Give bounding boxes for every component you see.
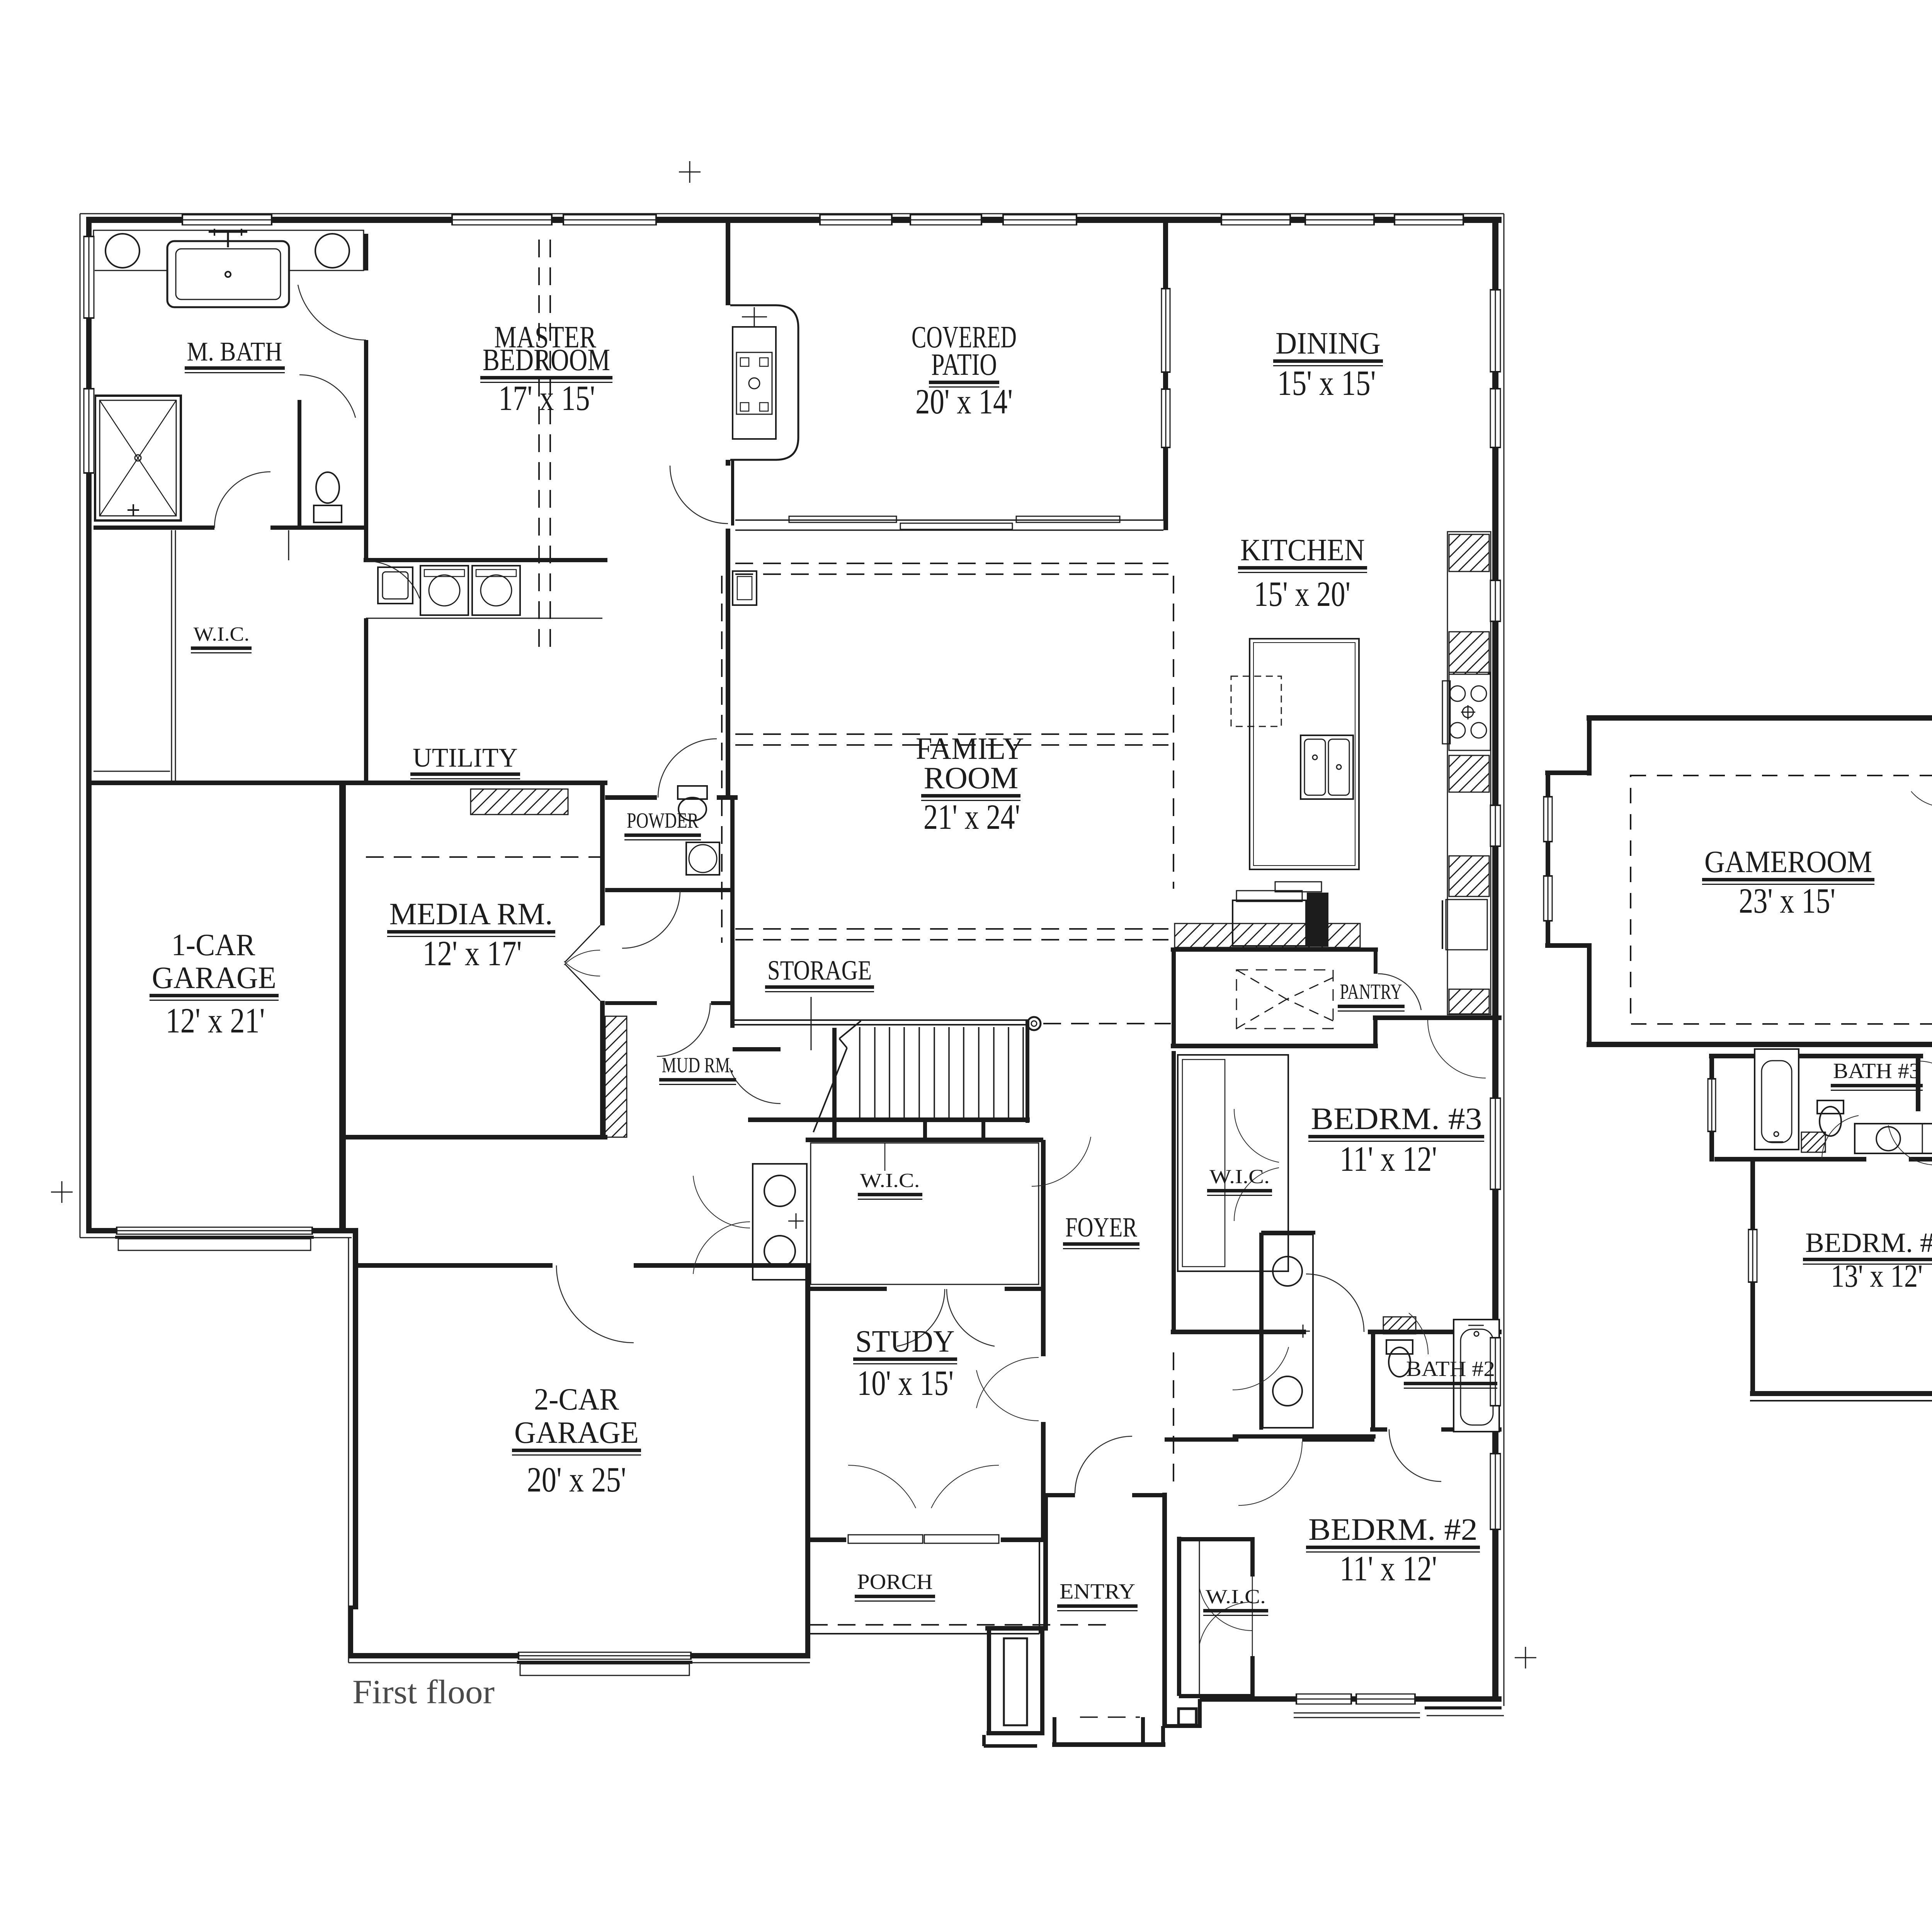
- svg-text:MEDIA RM.: MEDIA RM.: [389, 897, 553, 931]
- svg-text:POWDER: POWDER: [627, 809, 699, 833]
- svg-text:M. BATH: M. BATH: [187, 337, 282, 367]
- svg-text:First floor: First floor: [352, 1673, 495, 1711]
- svg-text:11' x 12': 11' x 12': [1340, 1139, 1437, 1179]
- svg-text:BATH #3: BATH #3: [1833, 1059, 1920, 1083]
- svg-text:ROOM: ROOM: [924, 761, 1019, 795]
- svg-text:KITCHEN: KITCHEN: [1240, 533, 1365, 567]
- svg-text:21' x 24': 21' x 24': [923, 797, 1020, 837]
- svg-text:GARAGE: GARAGE: [152, 961, 276, 995]
- svg-text:20' x 25': 20' x 25': [527, 1460, 626, 1499]
- svg-text:BEDRM. #4: BEDRM. #4: [1805, 1227, 1932, 1258]
- svg-text:GAMEROOM: GAMEROOM: [1704, 845, 1872, 879]
- svg-text:15' x 15': 15' x 15': [1277, 363, 1376, 403]
- svg-text:17' x 15': 17' x 15': [498, 378, 595, 418]
- svg-text:PATIO: PATIO: [931, 348, 997, 382]
- svg-text:11' x 12': 11' x 12': [1340, 1549, 1437, 1588]
- svg-text:W.I.C.: W.I.C.: [860, 1170, 920, 1192]
- svg-text:23' x 15': 23' x 15': [1739, 881, 1835, 920]
- svg-text:20' x 14': 20' x 14': [915, 382, 1013, 421]
- svg-text:DINING: DINING: [1276, 327, 1381, 361]
- svg-text:ENTRY: ENTRY: [1060, 1580, 1135, 1604]
- svg-text:12' x 17': 12' x 17': [423, 934, 522, 973]
- svg-text:1-CAR: 1-CAR: [172, 928, 256, 962]
- svg-text:GARAGE: GARAGE: [514, 1416, 639, 1450]
- svg-text:BEDROOM: BEDROOM: [483, 343, 610, 377]
- svg-text:PANTRY: PANTRY: [1340, 980, 1402, 1004]
- svg-text:10' x 15': 10' x 15': [857, 1363, 954, 1403]
- svg-text:MUD RM.: MUD RM.: [662, 1053, 734, 1077]
- svg-text:BEDRM. #2: BEDRM. #2: [1308, 1513, 1478, 1547]
- svg-text:FOYER: FOYER: [1065, 1212, 1137, 1243]
- svg-text:13' x 12': 13' x 12': [1831, 1258, 1923, 1294]
- svg-text:W.I.C.: W.I.C.: [1206, 1586, 1266, 1608]
- svg-text:15' x 20': 15' x 20': [1254, 574, 1350, 614]
- svg-text:12' x 21': 12' x 21': [166, 1001, 265, 1040]
- svg-text:STUDY: STUDY: [855, 1325, 955, 1359]
- svg-text:BATH #2: BATH #2: [1406, 1357, 1495, 1381]
- svg-text:PORCH: PORCH: [857, 1570, 933, 1594]
- svg-text:BEDRM. #3: BEDRM. #3: [1311, 1102, 1482, 1136]
- svg-text:2-CAR: 2-CAR: [534, 1383, 619, 1417]
- svg-text:W.I.C.: W.I.C.: [1209, 1166, 1270, 1188]
- svg-text:W.I.C.: W.I.C.: [194, 623, 250, 645]
- svg-text:UTILITY: UTILITY: [413, 743, 518, 773]
- svg-text:FAMILY: FAMILY: [916, 732, 1024, 766]
- svg-text:STORAGE: STORAGE: [767, 955, 872, 986]
